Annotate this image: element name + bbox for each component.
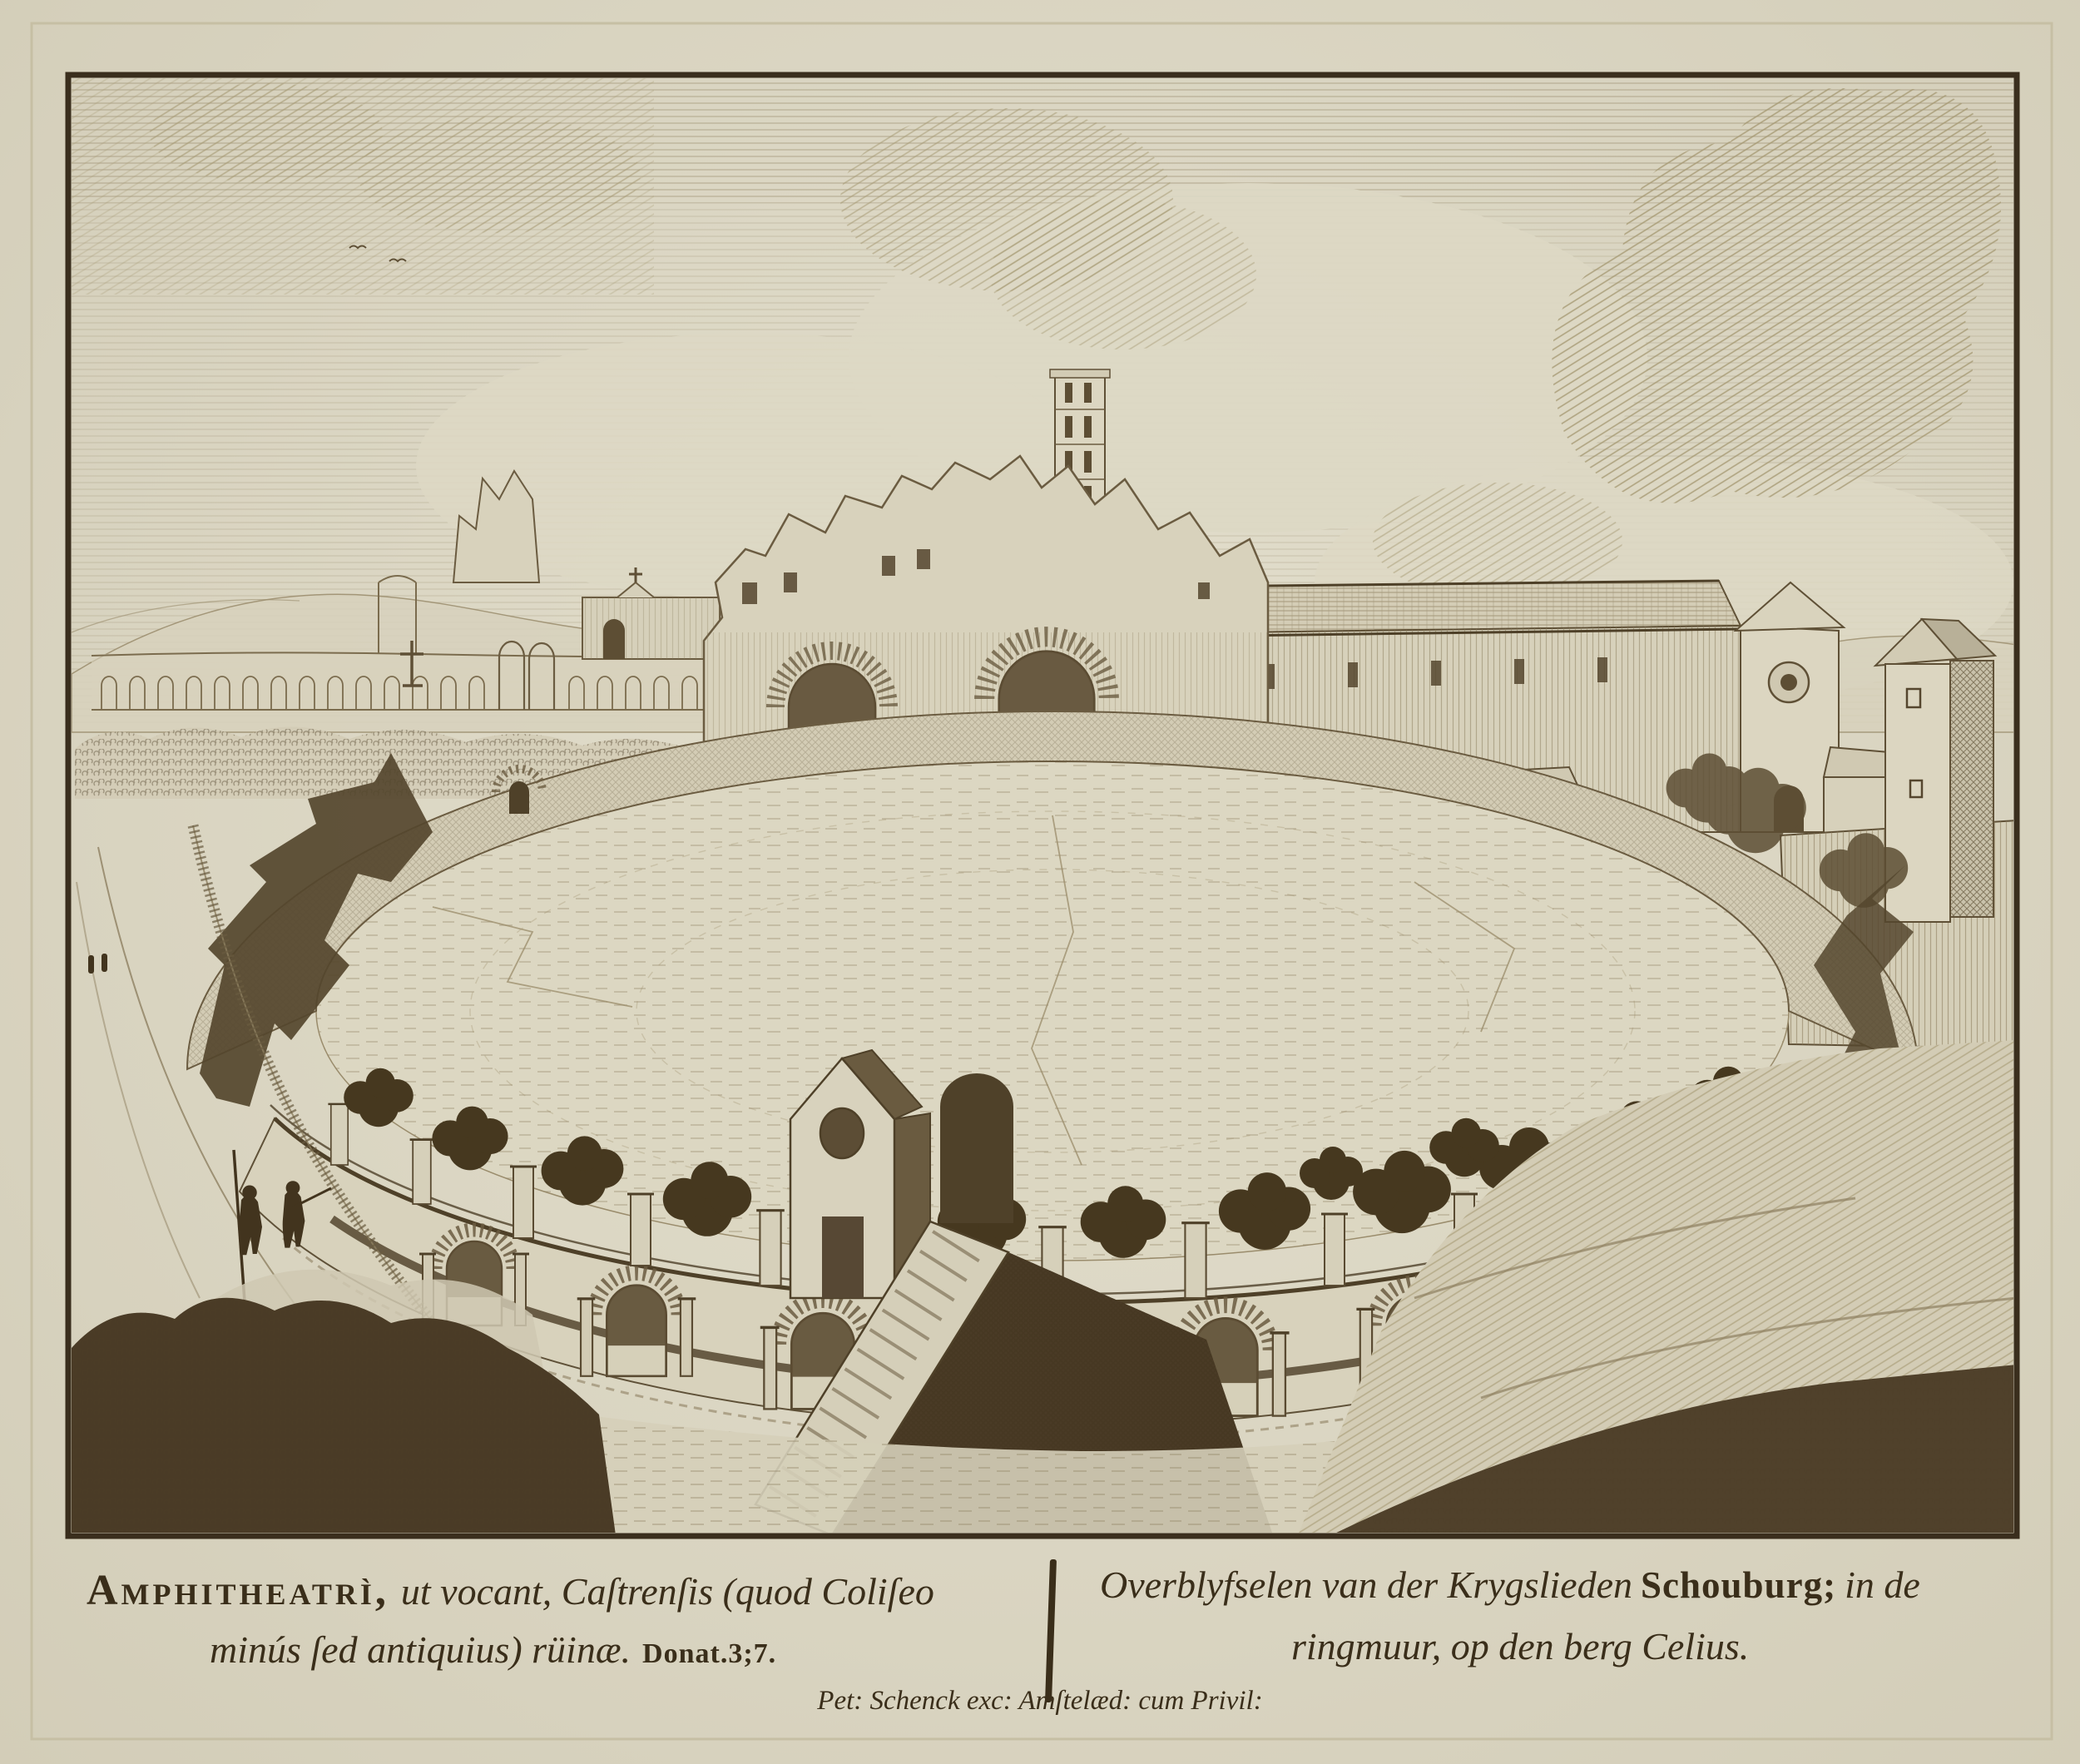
gatehouse-door bbox=[822, 1216, 864, 1298]
caption-dutch-line2: ringmuur, op den berg Celius. bbox=[1291, 1624, 1749, 1668]
etched-scene bbox=[0, 0, 2080, 1764]
caption-latin-line1: Amphitheatrì,ut vocant, Caſtrenſis (quod… bbox=[87, 1566, 934, 1615]
caption-latin-rest: ut vocant, Caſtrenſis (quod Coliſeo bbox=[401, 1570, 934, 1613]
etching-print: Amphitheatrì,ut vocant, Caſtrenſis (quod… bbox=[0, 0, 2080, 1764]
caption-dutch-line1: Overblyfselen van der KrygsliedenSchoubu… bbox=[1100, 1563, 1920, 1607]
rim-gate bbox=[509, 781, 529, 814]
gate-arch-dark bbox=[940, 1073, 1013, 1223]
caption-latin-lead: Amphitheatrì, bbox=[87, 1567, 389, 1614]
oval-window bbox=[820, 1108, 864, 1158]
caption-source-ref: Donat.3;7. bbox=[642, 1638, 776, 1669]
caption-latin-line2: minús ſed antiquius) rüinæ.Donat.3;7. bbox=[210, 1628, 776, 1672]
caption-dutch-highlight: Schouburg; bbox=[1641, 1564, 1836, 1606]
picture bbox=[68, 75, 2017, 1536]
publisher-line: Pet: Schenck exc: Amſtelæd: cum Privil: bbox=[0, 1686, 2080, 1717]
